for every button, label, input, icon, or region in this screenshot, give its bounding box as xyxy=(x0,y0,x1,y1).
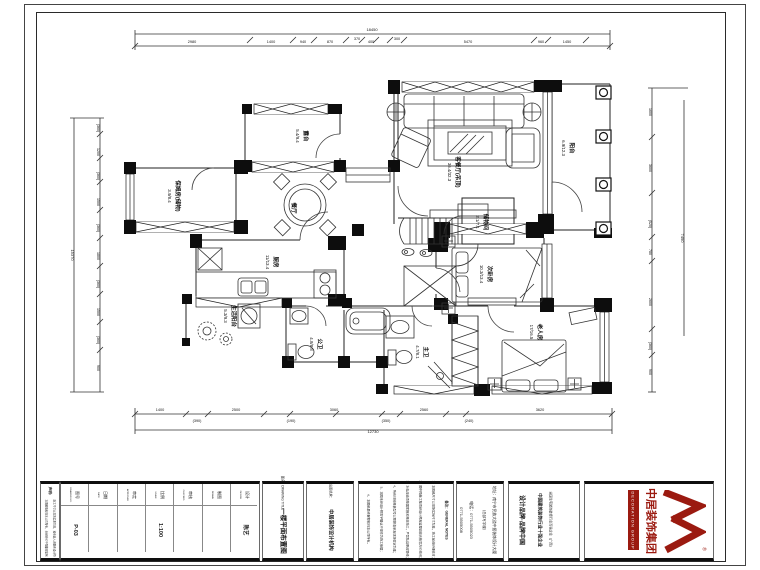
plan-label: (360) xyxy=(648,342,652,350)
elder-room-furniture xyxy=(452,307,597,392)
tb-text: 2、图中隐蔽工程须经设计师及监理验收合格后方可封闭； xyxy=(418,480,421,559)
plan-label: (360) xyxy=(96,336,100,344)
plan-label: (360) xyxy=(96,124,100,132)
plan-label: 1800 xyxy=(96,252,100,260)
plan-label: (360) xyxy=(96,172,100,180)
public-bathroom xyxy=(288,308,390,360)
plan-label: 5.3/9.3 xyxy=(223,309,228,323)
plan-label: 400 xyxy=(368,40,374,44)
tb-text: 1、本图纸尺寸以现场实际尺寸为准，施工前请仔细核对； xyxy=(431,480,434,559)
plan-label: 940 xyxy=(300,40,306,44)
plan-label: 5.4/9.4 xyxy=(295,129,300,143)
plan-label: 1400 xyxy=(267,40,275,44)
tb-text: DATE xyxy=(96,492,98,498)
tb-text: 备注：GENERAL NOTES xyxy=(444,500,447,539)
plan-label: 4.7/8.1 xyxy=(415,345,420,359)
plan-label: 3.9/8.4 xyxy=(167,189,172,203)
plan-label: 1400 xyxy=(156,408,164,412)
plan-label: 870 xyxy=(327,40,333,44)
plan-label: 300 xyxy=(394,37,400,41)
tb-text: DESIGN xyxy=(238,491,240,499)
plan-label: (360) xyxy=(96,280,100,288)
living-room-furniture xyxy=(387,94,541,218)
tb-text: 全国住宅装饰装修行业百强企业（广西） xyxy=(548,491,551,548)
plan-label: 4.8/8.8 xyxy=(309,337,314,351)
plan-label: 7490 xyxy=(680,234,685,244)
balcony-columns xyxy=(596,86,611,235)
plan-label: 10.3/13.4 xyxy=(479,265,484,284)
plan-label: 1500 xyxy=(96,308,100,316)
plan-label: 2.1/7.1 xyxy=(475,215,480,229)
tb-text: 审核 xyxy=(188,491,192,499)
plan-label: 1500 xyxy=(96,198,100,206)
tb-text: P-03 xyxy=(71,524,77,536)
plan-label: 公卫 xyxy=(316,338,323,350)
plan-label: 3600 xyxy=(648,164,652,172)
plan-label: 厨房 xyxy=(272,256,280,268)
tb-text: （总部写字楼） xyxy=(481,508,485,533)
walls-solid xyxy=(124,80,612,396)
tb-text: 审定 xyxy=(132,491,136,499)
tb-text: 1:100 xyxy=(156,523,162,537)
tb-text: 电话：0771-5505023 xyxy=(469,501,473,539)
tb-text: 日期 xyxy=(103,491,107,499)
plan-label: 15370 xyxy=(70,249,75,261)
plan-label: 780 xyxy=(648,249,652,255)
plan-label: (520) xyxy=(648,220,652,228)
tb-text: 出图机构： xyxy=(328,484,331,500)
tb-text: DRAWING NO. xyxy=(68,488,70,503)
plan-label: 主卫 xyxy=(422,346,430,358)
tb-text: SCALE xyxy=(153,491,155,498)
tb-text: 陈艺 xyxy=(241,524,247,535)
tb-text: 图名：DRAWING TITLE xyxy=(280,476,283,510)
tb-text: 设计品牌·品牌中国 xyxy=(518,495,524,545)
tb-text: 5、本图未经设计师签字确认不得作为施工依据； xyxy=(379,487,382,554)
plan-label: 露台 xyxy=(302,130,310,142)
plan-label: (190) xyxy=(287,419,297,423)
plan-label: 12730 xyxy=(367,429,379,434)
tb-text: 0771-5505008 xyxy=(459,507,463,533)
tb-text: 图号 xyxy=(75,491,79,499)
tb-text: CHECKED xyxy=(181,490,183,501)
plan-label: 储物间 xyxy=(482,213,490,231)
plan-label: 18450 xyxy=(366,27,378,32)
tb-text: 声明： xyxy=(47,487,51,498)
plan-label: 11/13.4 xyxy=(265,255,270,270)
plan-label: (240) xyxy=(465,419,475,423)
tb-text: 4、所有材料规格型号以预算清单及现场签定为准； xyxy=(392,485,395,555)
plan-label: 阳台 xyxy=(568,142,576,154)
plan-label: 客餐厅(吊顶) xyxy=(454,155,462,187)
plan-label: 生活阳台 xyxy=(230,305,238,328)
plan-label: 保姆房(储物) xyxy=(174,179,182,211)
plan-label: 2600 xyxy=(648,298,652,306)
tb-text: 3、水电改造须按国家相关规范施工，严禁私自更改管线； xyxy=(405,480,408,559)
service-balcony xyxy=(198,304,260,345)
plan-label: 1600 xyxy=(648,108,652,116)
tb-text: 地址：南宁市民族大道中居装饰设计大厦 xyxy=(491,486,495,554)
logo-mountain-icon xyxy=(660,490,706,554)
plan-label: 5470 xyxy=(464,40,472,44)
tb-text: APPROVED xyxy=(125,489,127,501)
plan-label: (360) xyxy=(96,224,100,232)
plan-label: 2500 xyxy=(232,408,240,412)
plan-label: 370 xyxy=(354,37,360,41)
plan-label: 6.9/12.3 xyxy=(561,140,566,156)
plan-label: 36.4/32.3 xyxy=(447,163,452,182)
tb-text: DRAWN xyxy=(210,491,212,499)
plan-label: (390) xyxy=(193,419,203,423)
tb-text: 中居装饰设计机构 xyxy=(327,509,332,551)
plan-label: 900 xyxy=(96,365,100,371)
plan-label: 1200 xyxy=(96,148,100,156)
tb-text: 本图纸版权归本公司所有，未经许可不得翻印复制 xyxy=(44,499,47,556)
logo-registered-mark: ® xyxy=(701,547,706,551)
logo-banner: DECORATION GROUP xyxy=(628,490,639,550)
plan-label: 1450 xyxy=(563,40,571,44)
plan-label: 3060 xyxy=(330,408,338,412)
plan-label: (350) xyxy=(382,419,392,423)
plan-label: 17/16.5 xyxy=(529,325,534,340)
logo-banner-text: DECORATION GROUP xyxy=(631,491,636,549)
tb-text: 施工尺寸以现场实测为准，如有出入请联系设计师 xyxy=(52,499,55,556)
tb-text: 中国建筑装饰行业十强企业 xyxy=(537,493,542,547)
plan-label: 餐厅 xyxy=(290,201,298,214)
tb-text: 一楼平面布置图 xyxy=(279,508,286,554)
plan-label: 老人房 xyxy=(536,323,544,341)
tb-text: 6、本图纸最终解释权归本公司所有。 xyxy=(366,494,369,545)
plan-label: 3620 xyxy=(536,408,544,412)
plan-label: 2560 xyxy=(420,408,428,412)
tb-text: 设计 xyxy=(245,491,249,499)
tb-text: 比例 xyxy=(160,491,164,499)
plan-label: 2980 xyxy=(188,40,196,44)
plan-label: 次卧房 xyxy=(486,266,494,283)
plan-label: 960 xyxy=(538,40,544,44)
floor-plan: 客餐厅(吊顶)36.4/32.3阳台6.9/12.3露台5.4/9.4保姆房(储… xyxy=(0,0,760,470)
plan-label: 900 xyxy=(648,369,652,375)
logo-company-name: 中居装饰集团 xyxy=(645,488,656,554)
tb-text: 制图 xyxy=(217,491,221,499)
